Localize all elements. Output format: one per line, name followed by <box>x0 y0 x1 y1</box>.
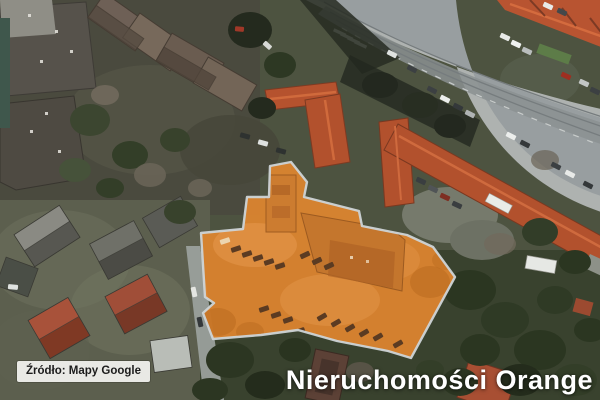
brand-watermark: Nieruchomości Orange <box>286 365 593 396</box>
property-listing-photo: Źródło: Mapy Google Nieruchomości Orange <box>0 0 600 400</box>
map-attribution-text: Źródło: Mapy Google <box>26 365 141 377</box>
map-attribution-badge: Źródło: Mapy Google <box>17 361 150 382</box>
satellite-map-image <box>0 0 600 400</box>
